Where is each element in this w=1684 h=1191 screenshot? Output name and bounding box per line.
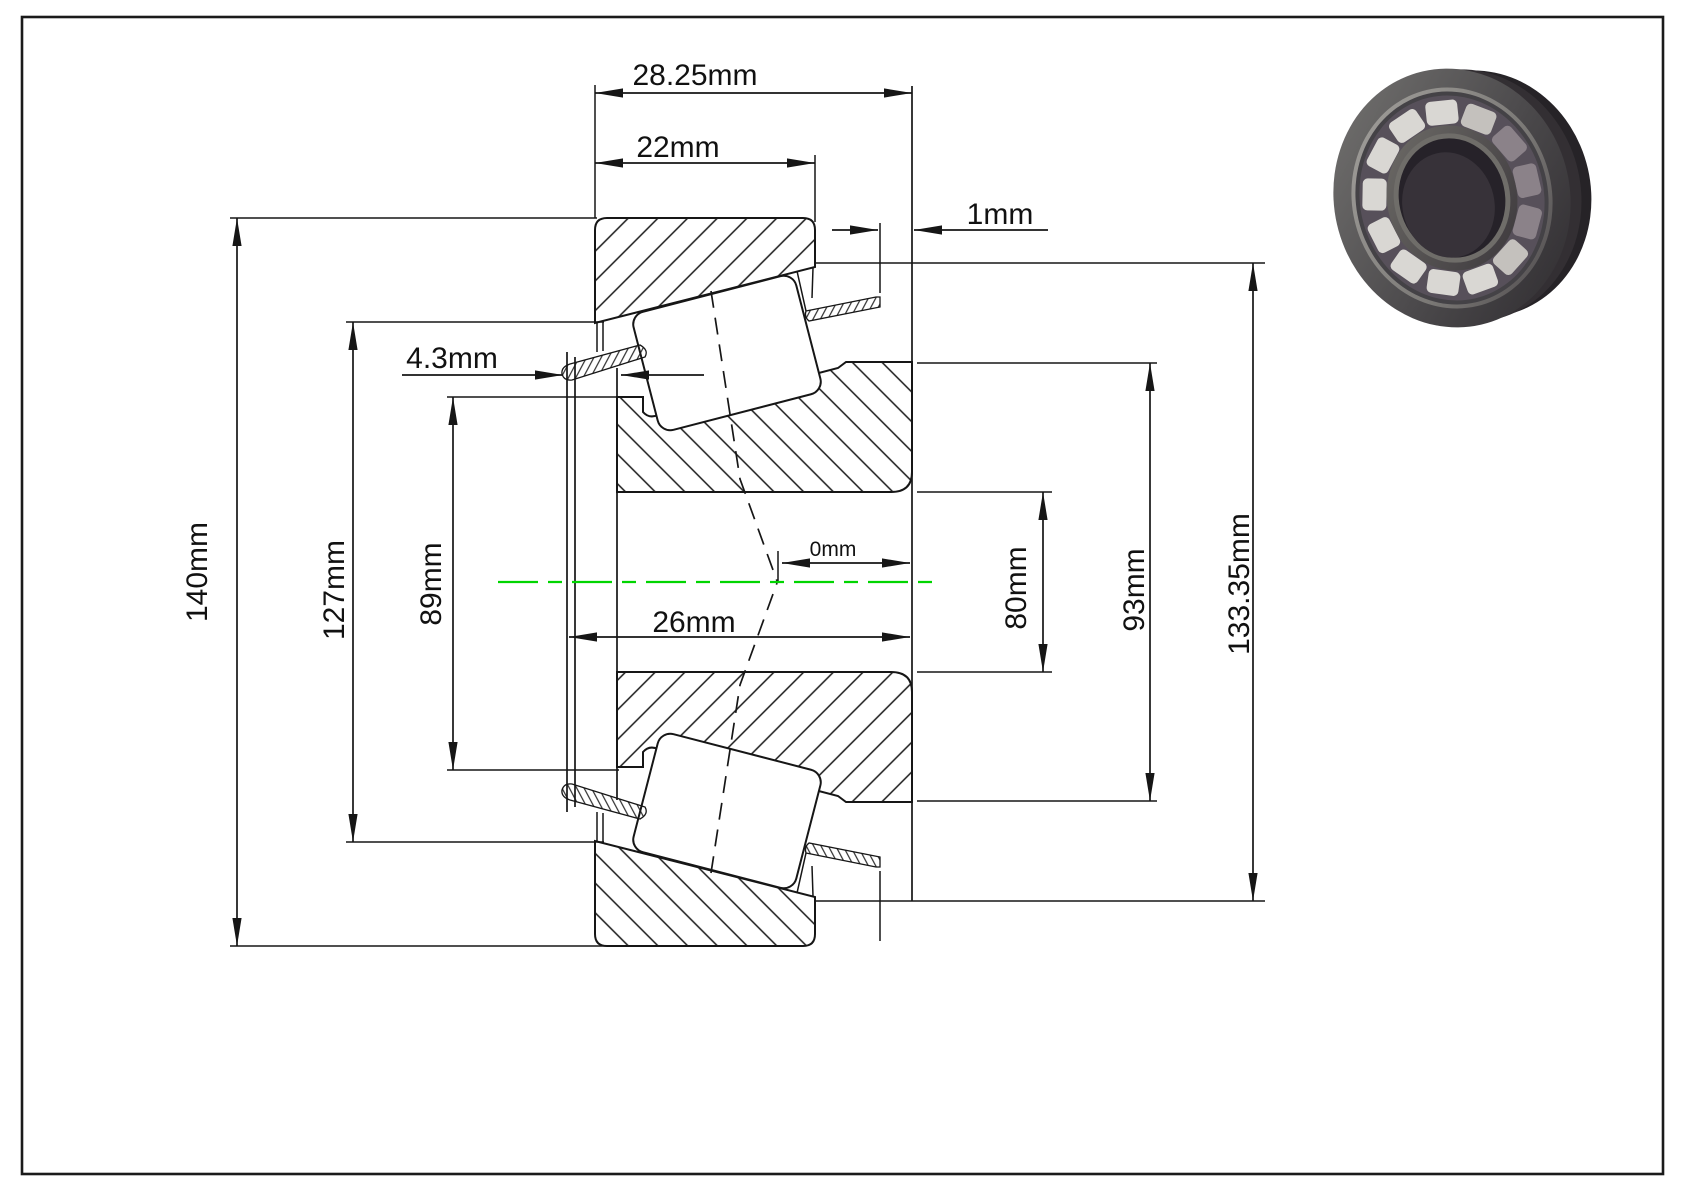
bearing-half-section <box>562 218 912 581</box>
label-cone-width: 26mm <box>652 606 735 639</box>
label-cup-width: 22mm <box>636 131 719 164</box>
label-center-offset: 0mm <box>810 538 857 561</box>
label-cup-front-id: 127mm <box>318 540 351 640</box>
label-cage-stickout: 1mm <box>967 198 1034 231</box>
label-flange-od: 140mm <box>181 522 214 622</box>
label-flange-offset: 4.3mm <box>406 342 498 375</box>
bearing-3d-render <box>1308 40 1617 351</box>
cage-lip-section <box>805 297 880 321</box>
cup-front-step-lines <box>597 322 603 352</box>
label-cone-front-od: 89mm <box>415 542 448 625</box>
drawing-page: 28.25mm 22mm 1mm 4.3mm 0mm 26mm 140mm 12… <box>0 0 1684 1191</box>
label-cup-od: 133.35mm <box>1223 513 1256 655</box>
label-bore: 80mm <box>1000 546 1033 629</box>
label-overall-width: 28.25mm <box>632 59 757 92</box>
bearing-engineering-drawing: 28.25mm 22mm 1mm 4.3mm 0mm 26mm 140mm 12… <box>0 0 1684 1191</box>
label-rib-od: 93mm <box>1118 548 1151 631</box>
